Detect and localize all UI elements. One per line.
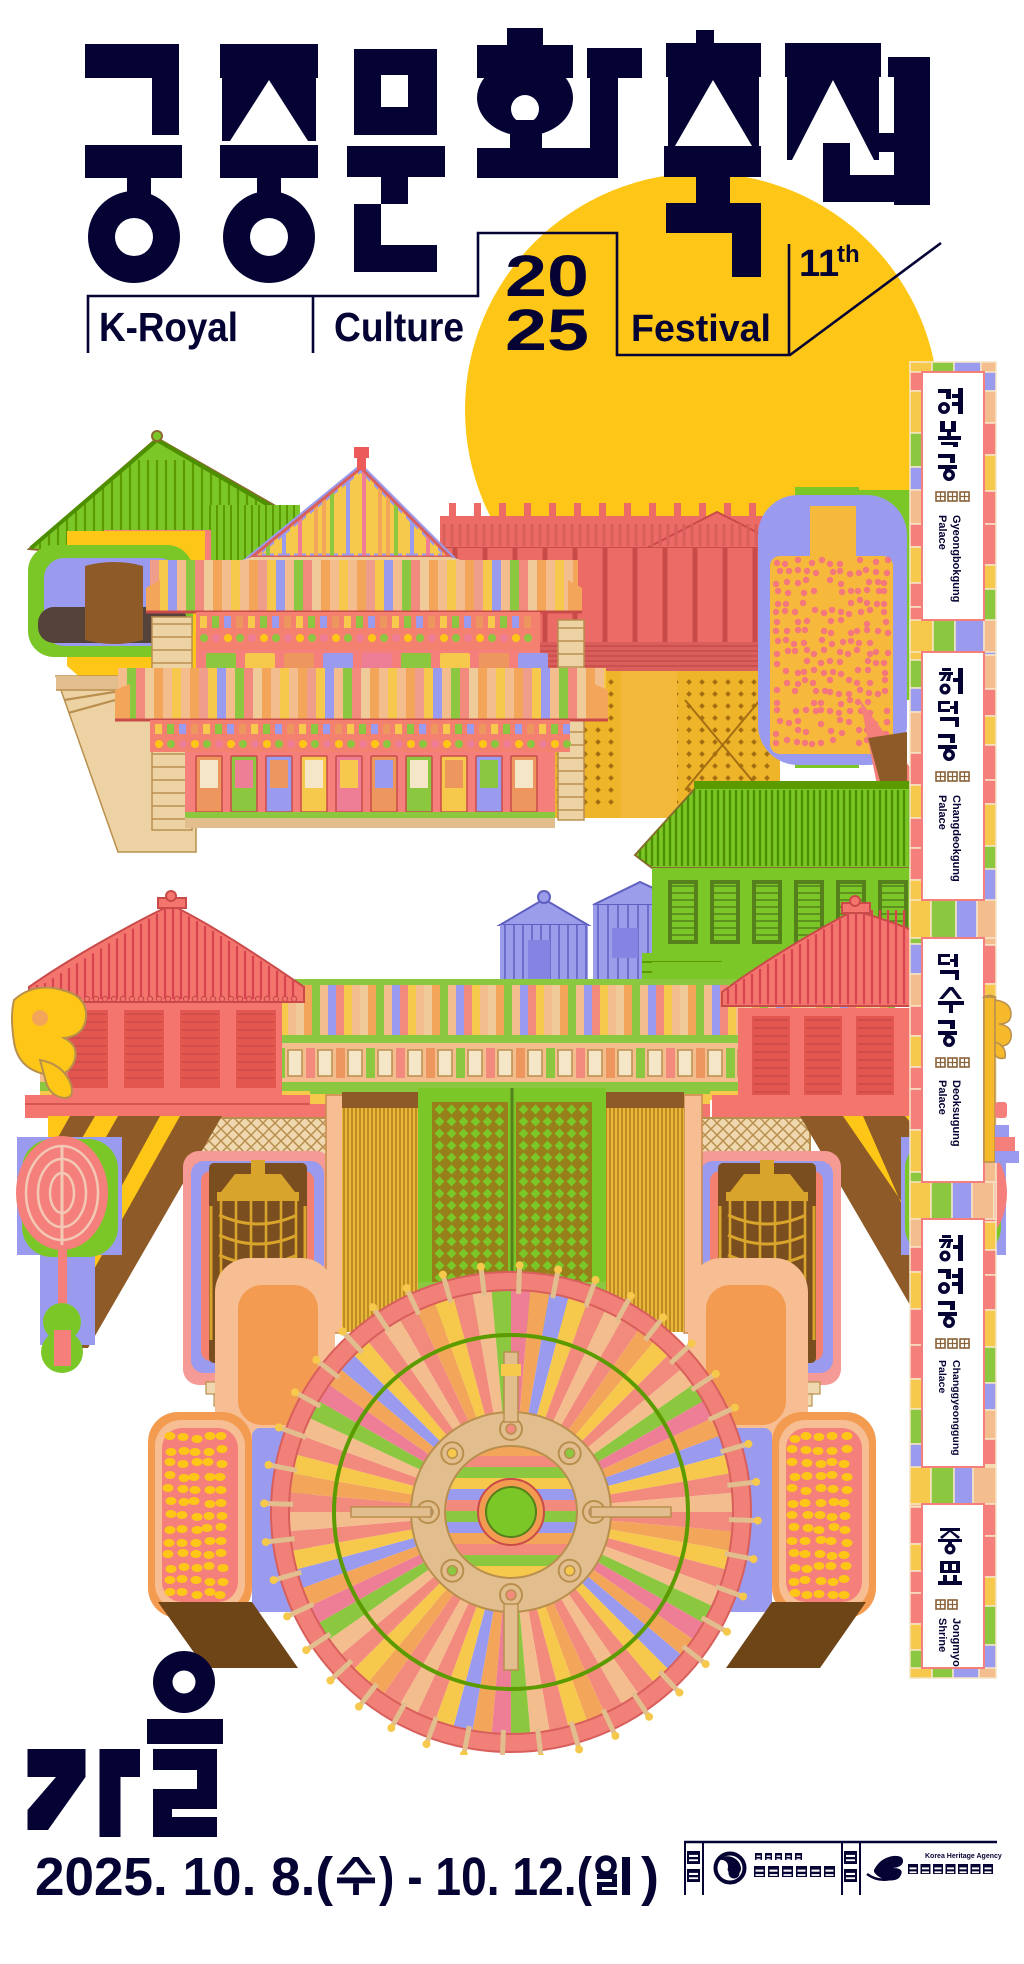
svg-text:Shrine: Shrine (936, 1618, 948, 1652)
svg-text:Festival: Festival (631, 308, 771, 350)
svg-text:2025. 10. 8.(: 2025. 10. 8.( (35, 1847, 333, 1907)
svg-text:Culture: Culture (334, 304, 464, 350)
svg-text:Jongmyo: Jongmyo (950, 1618, 962, 1667)
svg-text:Gyeongbokgung: Gyeongbokgung (950, 515, 962, 602)
svg-text:K-Royal: K-Royal (99, 304, 238, 350)
svg-text:th: th (837, 241, 860, 268)
svg-text:Deoksugung: Deoksugung (950, 1080, 962, 1147)
svg-text:): ) (641, 1847, 659, 1907)
svg-text:Changdeokgung: Changdeokgung (950, 795, 962, 882)
svg-text:11: 11 (799, 243, 839, 285)
svg-text:Changgyeonggung: Changgyeonggung (950, 1360, 962, 1456)
svg-text:Korea Heritage Agency: Korea Heritage Agency (925, 1853, 1002, 1860)
svg-text:25: 25 (505, 298, 589, 363)
svg-text:Palace: Palace (936, 795, 948, 830)
svg-text:Palace: Palace (936, 1080, 948, 1115)
svg-text:Palace: Palace (936, 1360, 948, 1393)
svg-text:Palace: Palace (936, 515, 948, 550)
svg-text:) - 10. 12.(: ) - 10. 12.( (379, 1847, 592, 1907)
